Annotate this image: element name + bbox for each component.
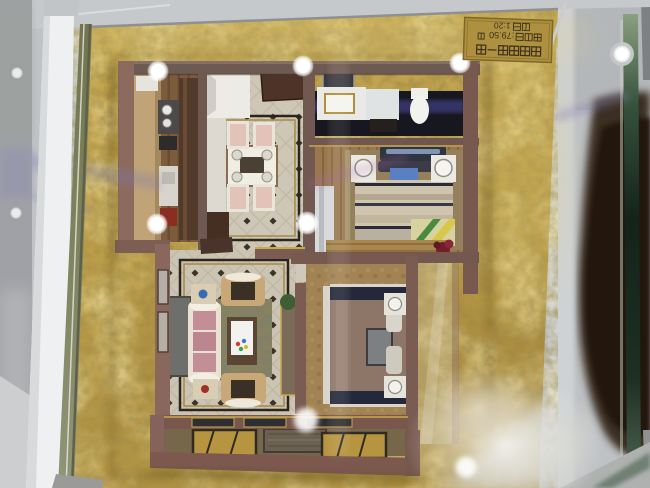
- svg-text:1:20: 1:20: [494, 20, 511, 31]
